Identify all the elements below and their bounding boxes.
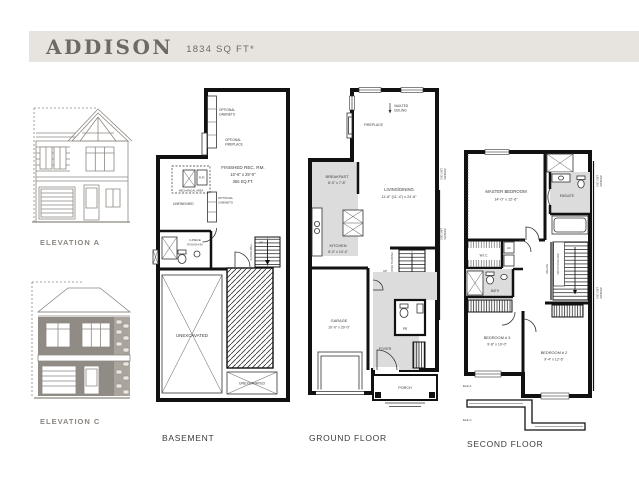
ele-a-label: ELE A — [463, 384, 471, 388]
porch-label: PORCH — [398, 386, 412, 390]
svg-text:WINDOW: WINDOW — [444, 168, 447, 180]
basement-unexcavated: UNEXCAVATED UNEXCAVATED — [162, 268, 277, 394]
second-floor-plan: MASTER BEDROOM 14'-0" x 12'-6" ENSUITE W… — [457, 141, 612, 463]
unexcavated-small-label: UNEXCAVATED — [239, 382, 266, 386]
opt-cabinets-top-label: OPTIONAL — [219, 108, 235, 112]
bedroom2-dims: 9'-4" x 12'-6" — [544, 358, 564, 362]
elevation-c-label: ELEVATION C — [40, 417, 100, 426]
unexcavated-label: UNEXCAVATED — [176, 333, 208, 338]
vaulted-ceiling-label: VAULTED — [394, 104, 409, 108]
svg-text:FIREPLACE: FIREPLACE — [225, 143, 243, 147]
elevation-c-drawing — [24, 276, 136, 418]
open-below-label: OPEN TO BELOW — [557, 253, 560, 275]
svg-text:CABINETS: CABINETS — [218, 201, 233, 205]
opt-fireplace-label: OPTIONAL — [225, 138, 241, 142]
closet — [413, 342, 425, 368]
wic-label: W.I.C. — [480, 254, 489, 258]
ground-floor-title: GROUND FLOOR — [309, 433, 387, 443]
second-ensuite: ENSUITE — [548, 172, 590, 234]
bedroom3-dims: 9'-8" x 10'-0" — [487, 343, 507, 347]
rough-in-label: 3-PIECE — [189, 238, 201, 242]
bath-label: BATH — [491, 289, 500, 293]
living-dims: 11'-8" (11'-4") x 24'-8" — [381, 195, 417, 199]
svg-text:CEILING: CEILING — [394, 109, 407, 113]
ensuite-label: ENSUITE — [560, 194, 575, 198]
floorplan-page: ADDISON 1834 SQ FT* ELEVATION A — [0, 0, 639, 491]
ground-kitchen-breakfast: BREAKFAST 8'-0" x 7'-8" KITCHEN 8'-0" x … — [312, 162, 363, 256]
railing-label: RAILING — [546, 264, 549, 274]
ele-c-label: ELE C — [463, 418, 473, 422]
svg-text:CABINETS: CABINETS — [219, 113, 235, 117]
rec-room-area: 356 SQ.FT. — [233, 179, 254, 184]
page-title: ADDISON — [46, 35, 173, 59]
breakfast-name: BREAKFAST — [326, 174, 350, 179]
elevation-a-drawing — [24, 103, 136, 235]
opt-cabinets-bottom-label: OPTIONAL — [218, 196, 234, 200]
rec-room-name: FINISHED REC. RM. — [221, 165, 264, 170]
second-end-unit-annotations: END UNIT WINDOW END UNIT WINDOW — [594, 161, 604, 391]
kitchen-name: KITCHEN — [329, 243, 346, 248]
basement-plan: OPTIONAL CABINETS OPTIONAL FIREPLACE FIN… — [151, 84, 297, 438]
bedroom3-name: BEDROOM # 3 — [484, 335, 511, 340]
sloped-wall-label: SLOPED WALL — [250, 243, 253, 260]
open-above-label: OPEN TO ABOVE — [391, 252, 394, 272]
ground-floor-plan: FIREPLACE VAULTED CEILING LIVING/DINING … — [301, 84, 451, 438]
fireplace-label: FIREPLACE — [364, 123, 384, 127]
page-subtitle: 1834 SQ FT* — [186, 39, 255, 55]
basement-hatched-area — [227, 268, 273, 368]
bedroom2-closet — [552, 305, 583, 317]
master-dims: 14'-0" x 12'-6" — [494, 198, 518, 202]
second-floor-title: SECOND FLOOR — [467, 439, 543, 449]
elevation-a-label: ELEVATION A — [40, 238, 100, 247]
breakfast-dims: 8'-0" x 7'-8" — [328, 181, 346, 185]
svg-text:WINDOW: WINDOW — [600, 287, 603, 299]
bedroom3-closet — [467, 300, 512, 312]
kitchen-dims: 8'-0" x 10'-4" — [328, 250, 348, 254]
bedroom2-name: BEDROOM # 2 — [541, 350, 568, 355]
ele-c-outline — [467, 400, 585, 430]
svg-text:WINDOW: WINDOW — [444, 228, 447, 240]
ground-end-unit-annotations: END UNIT WINDOW END UNIT WINDOW — [440, 168, 448, 320]
ground-porch: PORCH — [373, 375, 437, 407]
up-label: UP — [259, 241, 263, 245]
basement-title: BASEMENT — [162, 433, 214, 443]
garage-name: GARAGE — [331, 318, 348, 323]
rec-room-dims: 10'-6" x 29'-0" — [230, 172, 256, 177]
linen-label: LIN. — [507, 248, 512, 250]
powder-room-label: PR — [403, 327, 408, 331]
living-name: LIVING/DINING — [384, 187, 414, 192]
mechanical-area-label: MECHANICAL AREA — [179, 189, 204, 193]
header-band: ADDISON 1834 SQ FT* — [29, 31, 639, 62]
garage-dims: 10'-0" x 20'-0" — [328, 326, 350, 330]
master-name: MASTER BEDROOM — [485, 189, 527, 194]
svg-text:WINDOW: WINDOW — [600, 175, 603, 187]
unfinished-label: UNFINISHED — [173, 202, 194, 206]
svg-text:ROUGH-IN: ROUGH-IN — [187, 243, 202, 247]
furnace-label: FUR. — [199, 176, 206, 180]
